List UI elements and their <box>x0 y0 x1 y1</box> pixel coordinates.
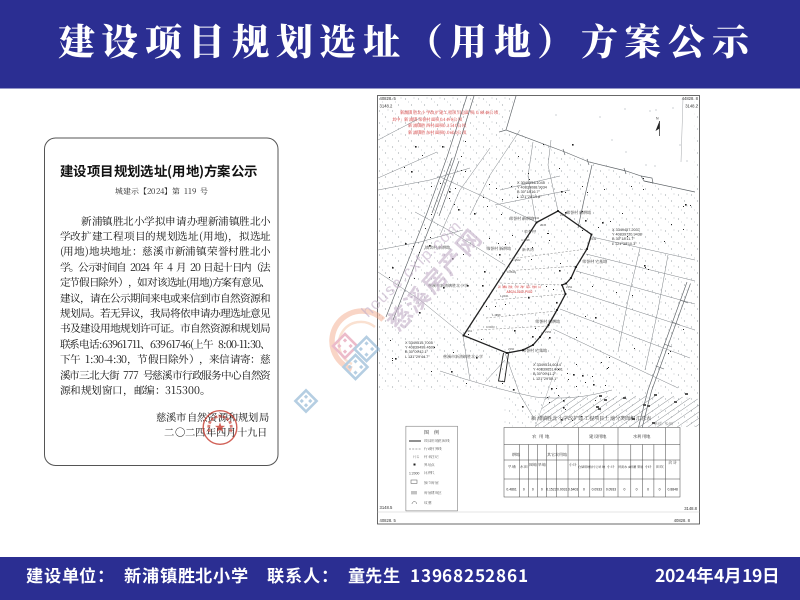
svg-text:B 30°09′42.1″: B 30°09′42.1″ <box>405 350 429 354</box>
svg-text:4.4998: 4.4998 <box>521 238 530 242</box>
svg-text:0.6403: 0.6403 <box>486 325 495 329</box>
svg-text:L 121°30′10.3″: L 121°30′10.3″ <box>612 242 637 246</box>
svg-text:0.8848: 0.8848 <box>668 488 678 492</box>
svg-text:44828. 8: 44828. 8 <box>682 96 699 101</box>
svg-text:0: 0 <box>623 488 625 492</box>
svg-text:2361: 2361 <box>466 329 473 333</box>
svg-text:B 30°09′41.2″: B 30°09′41.2″ <box>533 372 557 376</box>
svg-text:X 3349514.6014: X 3349514.6014 <box>533 363 561 367</box>
svg-text:1.4998: 1.4998 <box>492 313 501 317</box>
svg-text:0.0031: 0.0031 <box>557 488 567 492</box>
svg-text:2352: 2352 <box>566 285 573 289</box>
svg-text:L 121°28′14.8″: L 121°28′14.8″ <box>517 195 542 199</box>
svg-text:X 3349134.1045: X 3349134.1045 <box>517 181 545 185</box>
svg-text:0: 0 <box>659 488 661 492</box>
svg-text:40828. 5: 40828. 5 <box>380 96 397 101</box>
svg-text:0: 0 <box>647 488 649 492</box>
svg-text:3148.8: 3148.8 <box>684 506 697 511</box>
svg-text:3148.5: 3148.5 <box>380 505 393 510</box>
svg-text:0: 0 <box>583 488 585 492</box>
svg-text:0.0933: 0.0933 <box>606 488 616 492</box>
svg-text:2345: 2345 <box>540 223 547 227</box>
svg-text:3148.2: 3148.2 <box>685 104 698 109</box>
svg-text:40828. 8: 40828. 8 <box>674 518 691 523</box>
svg-text:0: 0 <box>636 488 638 492</box>
svg-text:0.4861: 0.4861 <box>506 488 516 492</box>
svg-text:0.6403: 0.6403 <box>568 488 578 492</box>
svg-text:0: 0 <box>541 488 543 492</box>
svg-text:2342: 2342 <box>533 216 540 220</box>
svg-text:3148.2: 3148.2 <box>380 104 393 109</box>
svg-text:L 121°29′50.1″: L 121°29′50.1″ <box>533 377 558 381</box>
svg-text:0: 0 <box>523 488 525 492</box>
svg-text:Y 40839088.9034: Y 40839088.9034 <box>517 186 547 190</box>
svg-text:2349: 2349 <box>590 237 597 241</box>
svg-text:X 3349515.7005: X 3349515.7005 <box>405 341 433 345</box>
svg-text:0.0933: 0.0933 <box>592 488 602 492</box>
svg-text:A2024-0102-P002: A2024-0102-P002 <box>507 290 533 294</box>
svg-text:2356: 2356 <box>545 330 552 334</box>
svg-text:0.8848: 0.8848 <box>507 270 516 274</box>
svg-text:1.4502: 1.4502 <box>512 258 521 262</box>
svg-text:0: 0 <box>532 488 534 492</box>
svg-text:B 30°18′11.7″: B 30°18′11.7″ <box>612 237 635 241</box>
svg-text:2360: 2360 <box>508 347 515 351</box>
svg-text:X 3349457.2037: X 3349457.2037 <box>612 228 640 232</box>
svg-text:B 30°18′16.7″: B 30°18′16.7″ <box>517 190 541 194</box>
svg-text:40828. 5: 40828. 5 <box>380 518 397 523</box>
svg-text:L 121°29′44.7″: L 121°29′44.7″ <box>405 355 430 359</box>
svg-text:0.1522: 0.1522 <box>546 488 556 492</box>
svg-text:Y 40839720.9438: Y 40839720.9438 <box>612 233 642 237</box>
svg-text:1:2000: 1:2000 <box>409 472 419 476</box>
svg-text:1.0941: 1.0941 <box>500 294 509 298</box>
svg-text:Y 40839499.4609: Y 40839499.4609 <box>405 346 435 350</box>
